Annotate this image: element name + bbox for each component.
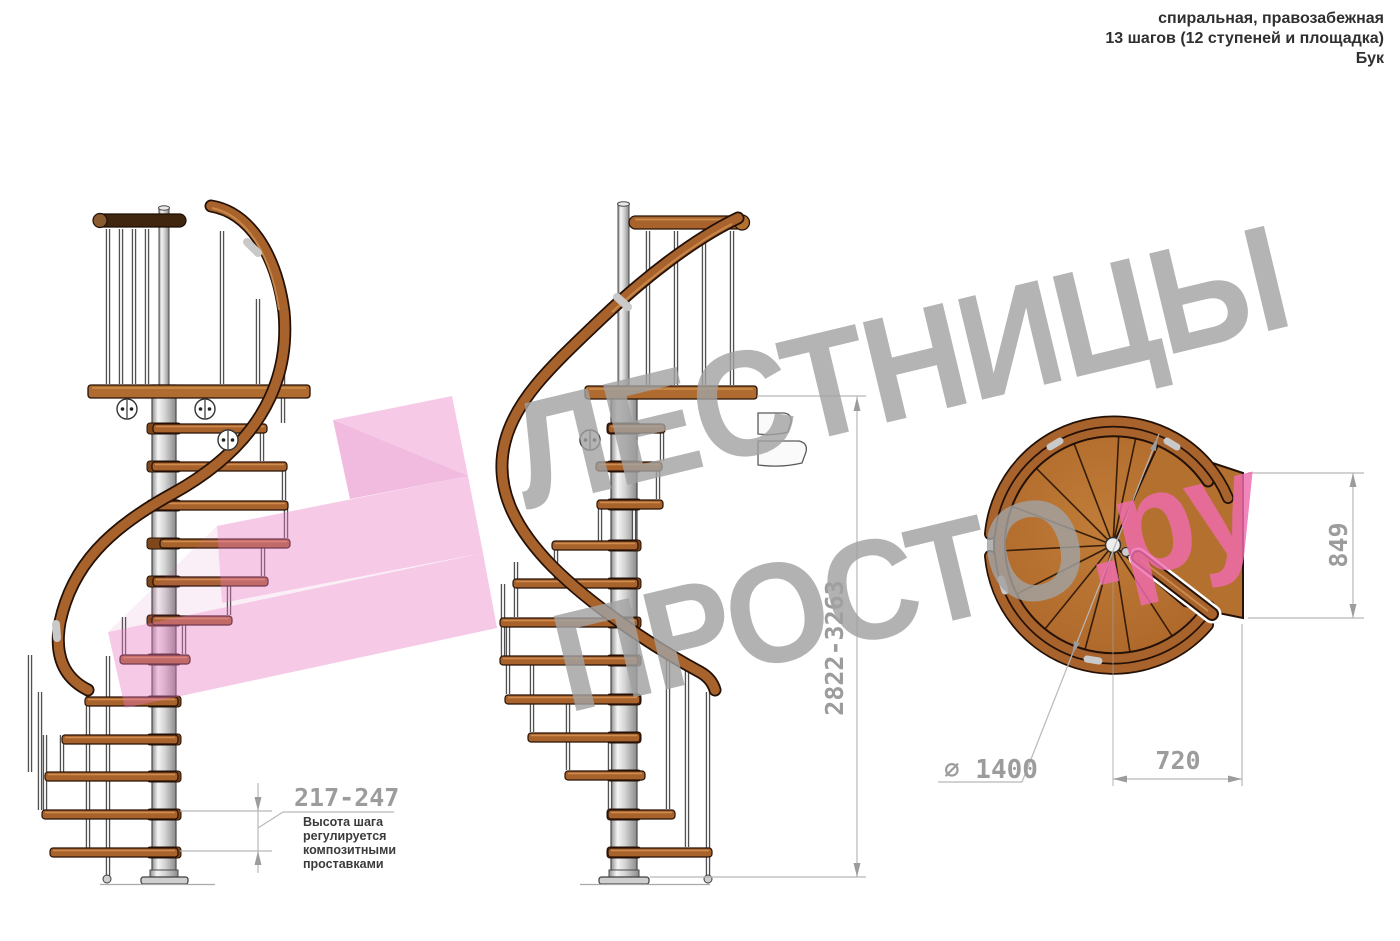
base-flange <box>141 877 188 884</box>
stair-tread <box>45 772 178 781</box>
stair-tread <box>608 810 675 819</box>
leader-line <box>258 812 283 828</box>
disc-bolt <box>231 438 235 442</box>
arrowhead <box>1113 776 1127 783</box>
step-note-line: Высота шага <box>303 815 384 829</box>
landing-handrail <box>96 214 186 227</box>
arrowhead <box>1228 776 1242 783</box>
stair-tread <box>62 735 178 744</box>
arrowhead <box>255 851 262 865</box>
arrowhead <box>854 863 861 877</box>
dimension-step-height: 217-247 Высота шага регулируется компози… <box>180 783 399 873</box>
material-label: Бук <box>1105 49 1384 69</box>
disc-bolt <box>208 407 212 411</box>
step-note-line: композитными <box>303 843 396 857</box>
disc-bolt <box>121 407 125 411</box>
stair-tread <box>565 771 645 780</box>
arrowhead <box>255 797 262 811</box>
step-count-label: 13 шагов (12 ступеней и площадка) <box>1105 29 1384 49</box>
technical-drawing: 2822-3263 217-247 Высота шага регулирует… <box>0 0 1400 941</box>
stair-tread <box>608 848 712 857</box>
step-note-line: проставками <box>303 857 384 871</box>
arrowhead <box>1350 604 1357 618</box>
column-cap <box>618 202 630 207</box>
column-cap <box>159 206 170 210</box>
base-flange <box>599 877 649 884</box>
handrail-end-cap <box>93 214 107 228</box>
disc-bolt <box>130 407 134 411</box>
rail-joint-mark <box>56 624 57 638</box>
rod-foot <box>704 875 712 883</box>
stair-tread <box>152 501 288 510</box>
title-block: спиральная, правозабежная 13 шагов (12 с… <box>1105 9 1384 69</box>
drawing-page: спиральная, правозабежная 13 шагов (12 с… <box>0 0 1400 941</box>
step-note-line: регулируется <box>303 829 386 843</box>
rod-foot <box>103 875 111 883</box>
step-height-value: 217-247 <box>294 783 399 812</box>
plan-depth-value: 849 <box>1324 522 1353 567</box>
stair-type-label: спиральная, правозабежная <box>1105 9 1384 29</box>
stair-tread <box>42 810 178 819</box>
rail-joint-mark <box>1087 659 1099 661</box>
arrowhead <box>1350 473 1357 487</box>
diameter-value: ⌀ 1400 <box>944 755 1038 785</box>
column-post <box>159 208 169 388</box>
stair-tread <box>552 541 638 550</box>
stair-tread <box>50 848 178 857</box>
plan-width-value: 720 <box>1155 746 1200 775</box>
disc-bolt <box>222 438 226 442</box>
disc-bolt <box>199 407 203 411</box>
